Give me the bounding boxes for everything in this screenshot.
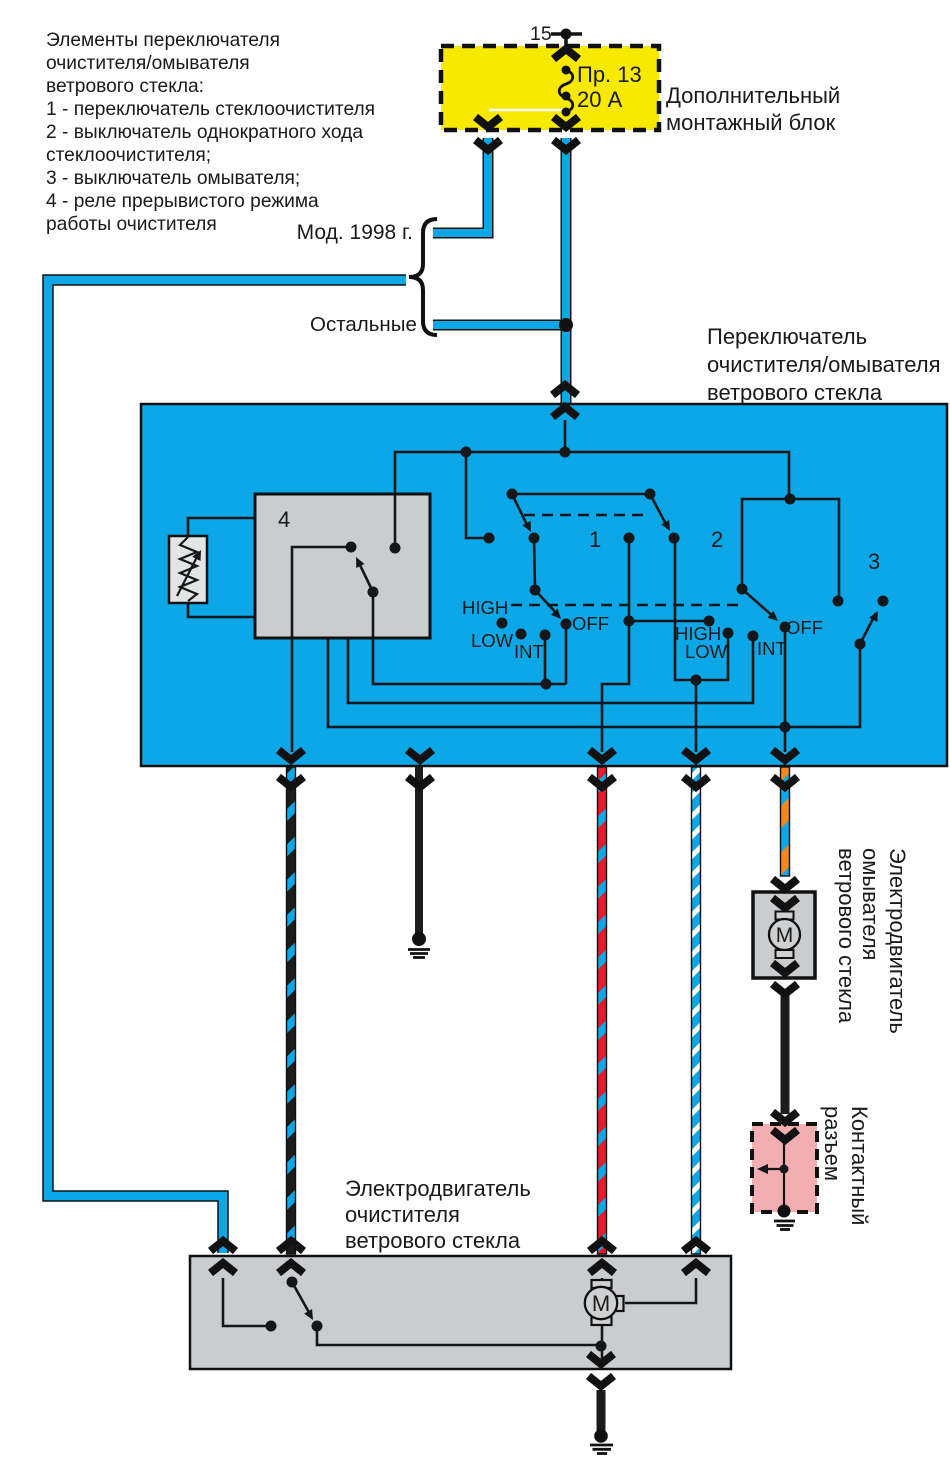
svg-text:1: 1 (589, 527, 601, 552)
svg-text:Остальные: Остальные (310, 313, 417, 336)
svg-text:Мод. 1998 г.: Мод. 1998 г. (297, 221, 413, 244)
svg-text:LOW: LOW (471, 630, 514, 651)
svg-text:4 - реле прерывистого режима: 4 - реле прерывистого режима (46, 191, 319, 212)
svg-text:20 А: 20 А (577, 87, 623, 112)
svg-text:Элементы переключателя: Элементы переключателя (46, 30, 280, 51)
svg-text:ветрового стекла: ветрового стекла (345, 1228, 521, 1253)
svg-text:2 - выключатель однократного х: 2 - выключатель однократного хода (46, 122, 363, 143)
svg-text:Контактный: Контактный (847, 1106, 872, 1225)
svg-text:монтажный блок: монтажный блок (666, 110, 836, 135)
svg-text:HIGH: HIGH (462, 597, 508, 618)
svg-text:стеклоочистителя;: стеклоочистителя; (46, 145, 211, 166)
svg-text:1 - переключатель стеклоочисти: 1 - переключатель стеклоочистителя (46, 99, 375, 120)
svg-text:Дополнительный: Дополнительный (666, 83, 840, 108)
svg-text:4: 4 (278, 507, 290, 532)
svg-text:омывателя: омывателя (858, 848, 883, 960)
svg-text:ветрового стекла: ветрового стекла (834, 848, 859, 1024)
svg-text:INT: INT (514, 641, 544, 662)
svg-text:очистителя: очистителя (345, 1202, 460, 1227)
svg-text:OFF: OFF (786, 617, 823, 638)
svg-text:M: M (592, 1291, 610, 1316)
svg-text:Электродвигатель: Электродвигатель (885, 848, 910, 1034)
svg-text:INT: INT (757, 638, 787, 659)
svg-text:15: 15 (530, 23, 552, 45)
svg-text:Электродвигатель: Электродвигатель (345, 1176, 531, 1201)
svg-text:ветрового стекла: ветрового стекла (707, 380, 883, 405)
svg-text:разъем: разъем (820, 1106, 845, 1181)
svg-text:ветрового стекла:: ветрового стекла: (46, 76, 204, 97)
svg-text:3: 3 (868, 549, 880, 574)
svg-text:работы очистителя: работы очистителя (46, 214, 217, 235)
svg-text:M: M (776, 924, 794, 947)
svg-text:очистителя/омывателя: очистителя/омывателя (707, 352, 941, 377)
svg-text:LOW: LOW (685, 641, 728, 662)
svg-text:очистителя/омывателя: очистителя/омывателя (46, 53, 250, 74)
svg-text:OFF: OFF (572, 613, 609, 634)
svg-text:Переключатель: Переключатель (707, 324, 867, 349)
svg-text:Пр. 13: Пр. 13 (577, 62, 642, 87)
svg-text:2: 2 (711, 527, 723, 552)
svg-text:3 - выключатель омывателя;: 3 - выключатель омывателя; (46, 168, 300, 189)
